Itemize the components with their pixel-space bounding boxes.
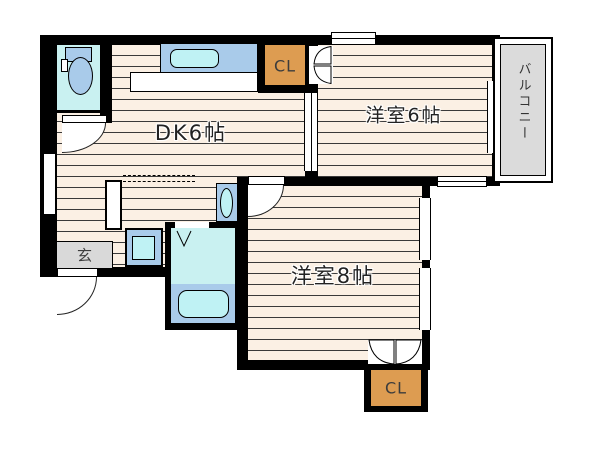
bathtub-icon bbox=[178, 290, 229, 318]
bathroom-door-v-icon bbox=[176, 230, 192, 248]
room-dk-label: DK6帖 bbox=[155, 117, 227, 147]
toilet-flush-handle bbox=[61, 59, 68, 72]
entrance-label: 玄 bbox=[77, 245, 93, 266]
sliding-door bbox=[304, 93, 318, 171]
entrance-door-leaf bbox=[57, 268, 98, 277]
closet-top-label: CL bbox=[274, 57, 296, 76]
overhead-cabinet-dashed bbox=[123, 175, 195, 182]
kitchen-counter bbox=[130, 72, 258, 92]
balcony-label: バルコニー bbox=[514, 62, 533, 142]
washbasin-icon bbox=[220, 188, 233, 218]
folding-door-icon-top bbox=[313, 46, 332, 84]
window-west8-upper-icon bbox=[419, 198, 431, 260]
folding-door-icon-bottom bbox=[368, 339, 422, 365]
shoe-cabinet bbox=[105, 180, 122, 230]
toilet-door-leaf bbox=[62, 115, 107, 123]
west8-door-leaf bbox=[248, 176, 285, 185]
toilet-room-wall bbox=[100, 35, 112, 123]
room-west6-label: 洋室6帖 bbox=[365, 101, 442, 128]
room-west8-label: 洋室8帖 bbox=[291, 260, 375, 290]
kitchen-sink-icon bbox=[170, 49, 219, 68]
window-bottom-west6-icon bbox=[437, 176, 487, 187]
window-left-icon bbox=[43, 154, 56, 214]
washing-machine-icon bbox=[132, 236, 155, 260]
entrance-door-arc bbox=[57, 277, 97, 315]
window-west8-lower-icon bbox=[419, 268, 431, 330]
closet-bottom-label: CL bbox=[385, 379, 407, 398]
toilet-icon bbox=[68, 57, 93, 95]
floor-plan: CL 玄 CL バルコニー DK6帖 洋室6帖 bbox=[0, 0, 600, 450]
window-top-west6-icon bbox=[331, 32, 376, 45]
